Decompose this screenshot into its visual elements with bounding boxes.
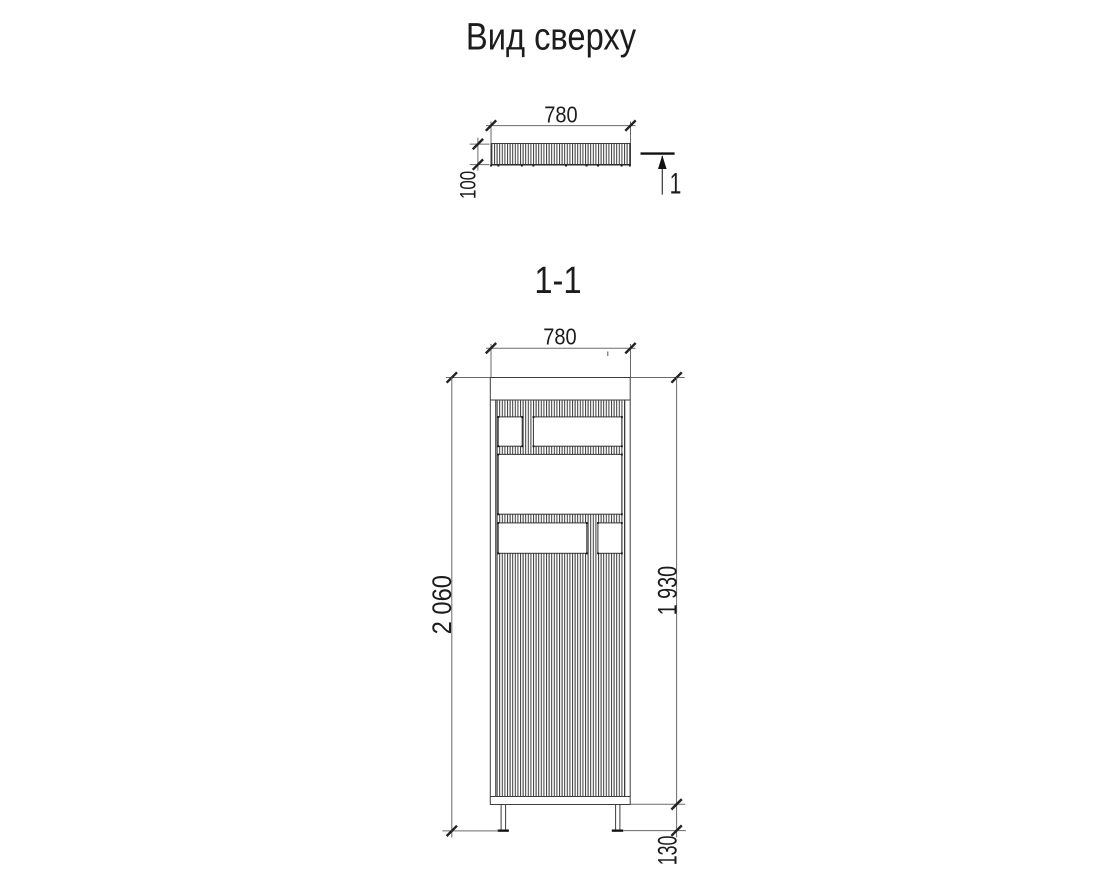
svg-text:2 060: 2 060: [428, 575, 458, 634]
svg-text:1-1: 1-1: [534, 259, 581, 302]
svg-text:780: 780: [544, 101, 577, 128]
svg-text:Вид сверху: Вид сверху: [466, 15, 636, 58]
svg-text:1 930: 1 930: [654, 566, 684, 615]
svg-text:100: 100: [456, 171, 481, 199]
svg-text:130: 130: [652, 836, 683, 866]
svg-text:780: 780: [543, 323, 576, 350]
svg-text:1: 1: [670, 168, 682, 200]
